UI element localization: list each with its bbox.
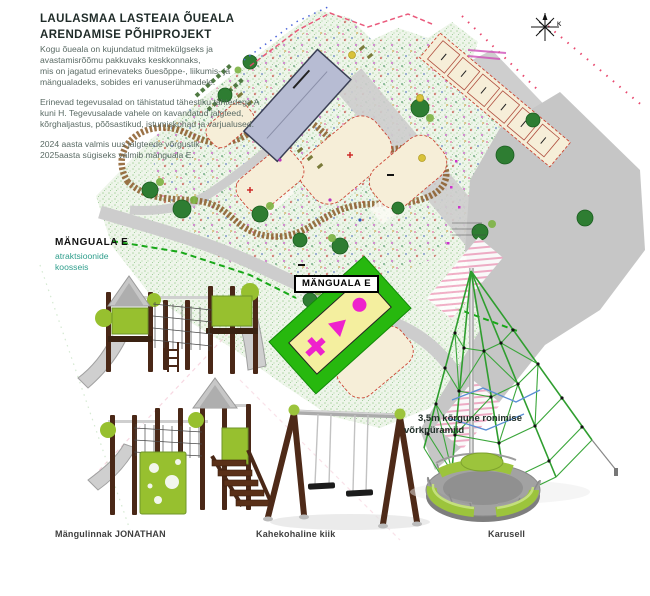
title-line-2: ARENDAMISE PÕHIPROJEKT — [40, 27, 234, 43]
intro-paragraph-2: Erinevad tegevusalad on tähistatud tähes… — [40, 97, 259, 130]
manguala-e-plan-label: MÄNGUALA E — [294, 275, 379, 293]
shadow — [270, 514, 430, 530]
swing-seat — [308, 482, 335, 489]
intro-text: Kogu õueala on kujundatud mitmekülgseks … — [40, 44, 259, 170]
render-play-towers — [78, 276, 270, 515]
frame-legs — [268, 413, 417, 524]
callout-sub-line: koosseis — [55, 262, 128, 273]
intro-line: kuni H. Tegevusalade vahele on kavandatu… — [40, 108, 259, 119]
swing-ropes — [315, 414, 368, 492]
pyramid-note: 3,5m kõrgune ronimise võrkpüramiid — [404, 413, 522, 437]
area-e-callout-subtitle: atraktsioonide koosseis — [55, 251, 128, 272]
poster-page: LAULASMAA LASTEAIA ÕUEALA ARENDAMISE PÕH… — [0, 0, 650, 596]
area-e-callout-title: MÄNGUALA E — [55, 237, 128, 248]
pyramid-note-line: võrkpüramiid — [404, 425, 522, 437]
pyramid-note-line: 3,5m kõrgune ronimise — [404, 413, 522, 425]
compass-icon — [531, 13, 559, 41]
tower-structure-lower — [88, 378, 270, 515]
title-line-1: LAULASMAA LASTEAIA ÕUEALA — [40, 11, 234, 27]
slide-left — [78, 336, 126, 388]
intro-line: kõrghaljastus, põõsastikud, istumiskohad… — [40, 119, 259, 130]
callout-sub-line: atraktsioonide — [55, 251, 128, 262]
intro-line: 2025aasta sügiseks valmib mänguala E. — [40, 150, 259, 161]
compass-label: K — [557, 22, 561, 28]
intro-line: Kogu õueala on kujundatud mitmekülgseks … — [40, 44, 259, 55]
intro-paragraph-1: Kogu õueala on kujundatud mitmekülgseks … — [40, 44, 259, 88]
render-carousel — [426, 453, 540, 522]
perforated-panel — [140, 452, 186, 514]
caption-play-towers: Mängulinnak JONATHAN — [55, 529, 166, 539]
intro-line: Erinevad tegevusalad on tähistatud tähes… — [40, 97, 259, 108]
caption-carousel: Karusell — [488, 529, 525, 539]
intro-line: avastamisrõõmu pakkuvaks keskkonnaks, — [40, 55, 259, 66]
intro-paragraph-3: 2024 aasta valmis uus jalgteede võrgusti… — [40, 139, 259, 161]
intro-line: mängualadeks, sobides eri vanuserühmadel… — [40, 77, 259, 88]
caption-swing: Kahekohaline kiik — [256, 529, 335, 539]
center-table — [461, 453, 503, 471]
area-e-callout: MÄNGUALA E atraktsioonide koosseis — [55, 237, 128, 272]
page-title: LAULASMAA LASTEAIA ÕUEALA ARENDAMISE PÕH… — [40, 11, 234, 43]
intro-line: mis on jagatud erinevateks õuesõppe-, li… — [40, 66, 259, 77]
intro-line: 2024 aasta valmis uus jalgteede võrgusti… — [40, 139, 259, 150]
